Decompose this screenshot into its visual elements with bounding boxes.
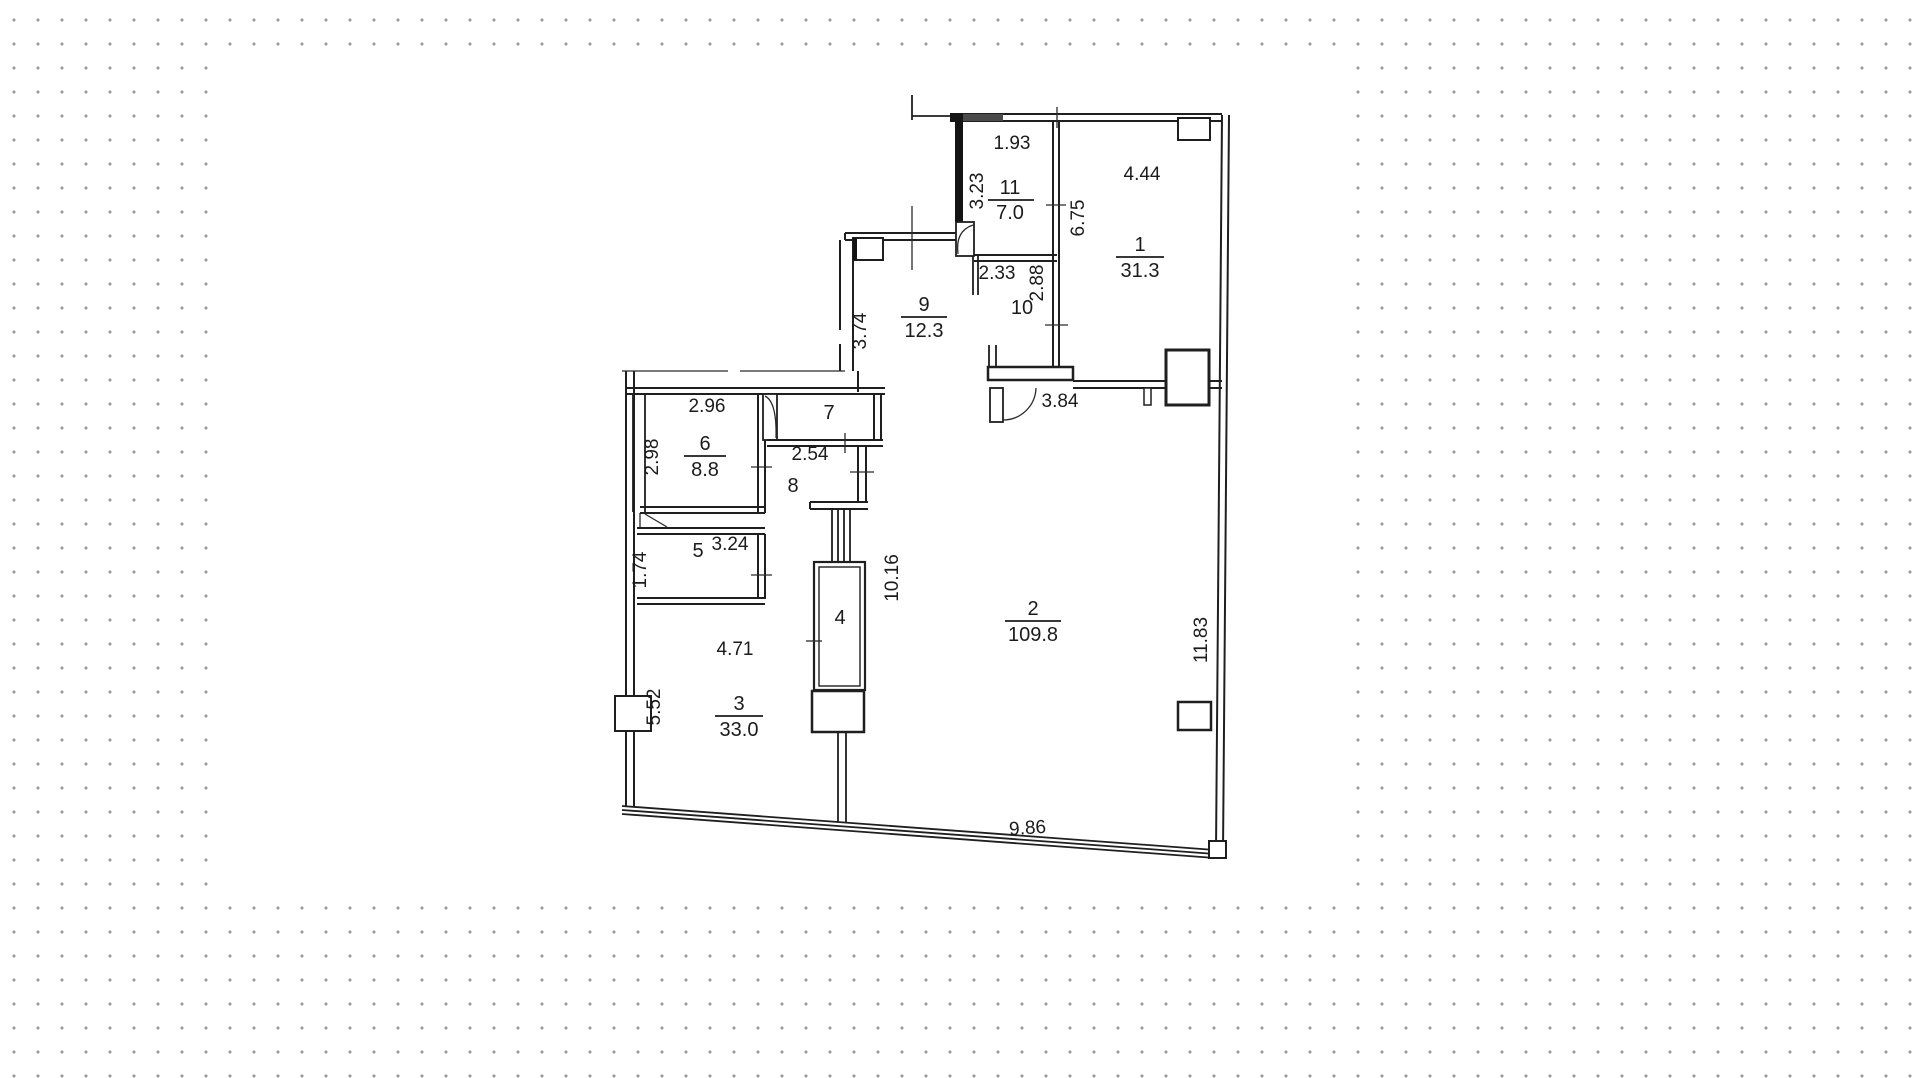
dim-471: 4.71 [717, 639, 754, 660]
top-wall-window-hatch [963, 114, 1003, 121]
floor-plan: 11 7.0 1 31.3 9 12.3 10 6 8.8 7 8 5 4 2 [0, 0, 1920, 1078]
room1-left-wall [1053, 122, 1059, 367]
dim-193: 1.93 [994, 133, 1031, 154]
room-3-number: 3 [733, 693, 744, 715]
dim-1183: 11.83 [1191, 617, 1212, 663]
dim-288: 2.88 [1027, 265, 1048, 302]
dim-444: 4.44 [1124, 164, 1161, 185]
right-wall-shaft-box [1178, 702, 1211, 730]
dim-1016: 10.16 [882, 554, 903, 602]
room-6-area: 8.8 [691, 459, 719, 481]
room1-wall-ticks [1045, 205, 1068, 325]
dim-324: 3.24 [712, 534, 749, 555]
wall-384-stub-up [989, 345, 996, 367]
room-1-number: 1 [1134, 234, 1145, 256]
room-3-area: 33.0 [720, 719, 759, 741]
shelf-diagonal [640, 513, 667, 528]
room11-bottom-wall [974, 255, 1057, 261]
room-labels: 11 7.0 1 31.3 9 12.3 10 6 8.8 7 8 5 4 2 [684, 177, 1164, 741]
column-and-ducts [806, 509, 865, 823]
room8-bottom-bar [810, 502, 868, 509]
duct-below-column [838, 732, 846, 823]
hall-shaft-box [853, 238, 883, 260]
room-5-number: 5 [692, 540, 703, 562]
room5-right-wall [758, 534, 765, 599]
room2-door-frame [990, 388, 1003, 422]
dim-552: 5.52 [644, 689, 665, 726]
room-11-area: 7.0 [996, 202, 1024, 224]
dim-384: 3.84 [1042, 391, 1079, 412]
room-2-area: 109.8 [1008, 624, 1058, 646]
room-8-number: 8 [787, 475, 798, 497]
room-1-area: 31.3 [1121, 260, 1160, 282]
bottom-right-corner-box [1209, 841, 1226, 858]
top-wall-bay-box [1178, 118, 1210, 140]
room-2-number: 2 [1027, 598, 1038, 620]
dim-233: 2.33 [979, 263, 1016, 284]
dim-254: 2.54 [792, 444, 829, 465]
duct-above-column [832, 509, 850, 562]
pillar [1166, 350, 1209, 405]
room-6-number: 6 [699, 433, 710, 455]
bottom-outer-wall [622, 806, 1215, 858]
room2-door-arc-icon [1003, 388, 1036, 420]
right-outer-wall [1216, 115, 1229, 851]
dim-174: 1.74 [630, 551, 651, 588]
room-9-area: 12.3 [905, 320, 944, 342]
dim-374: 3.74 [850, 312, 871, 349]
wall-384-thick [988, 367, 1073, 380]
dim-986: 9.86 [1008, 817, 1046, 841]
hall-left-wall [840, 240, 853, 371]
room-11-number: 11 [1000, 177, 1021, 199]
room-7-number: 7 [823, 402, 834, 424]
room-4-number: 4 [834, 607, 845, 629]
column4-base [812, 691, 864, 732]
dim-296: 2.96 [689, 396, 726, 417]
room8-left-wall [758, 446, 765, 513]
room-9-number: 9 [918, 294, 929, 316]
room7-right-wall [874, 394, 881, 440]
dim-675: 6.75 [1068, 200, 1089, 237]
dotted-canvas-background: 11 7.0 1 31.3 9 12.3 10 6 8.8 7 8 5 4 2 [0, 0, 1920, 1078]
dim-298: 2.98 [642, 439, 663, 476]
room6-bottom-wall [640, 507, 765, 513]
room11-left-wall [955, 113, 963, 222]
block-top-wall [627, 388, 885, 394]
room8-right-wall [858, 446, 866, 502]
room5-bottom-wall [637, 598, 765, 604]
dim-323: 3.23 [967, 173, 988, 210]
wall-stub-below [1144, 388, 1151, 405]
